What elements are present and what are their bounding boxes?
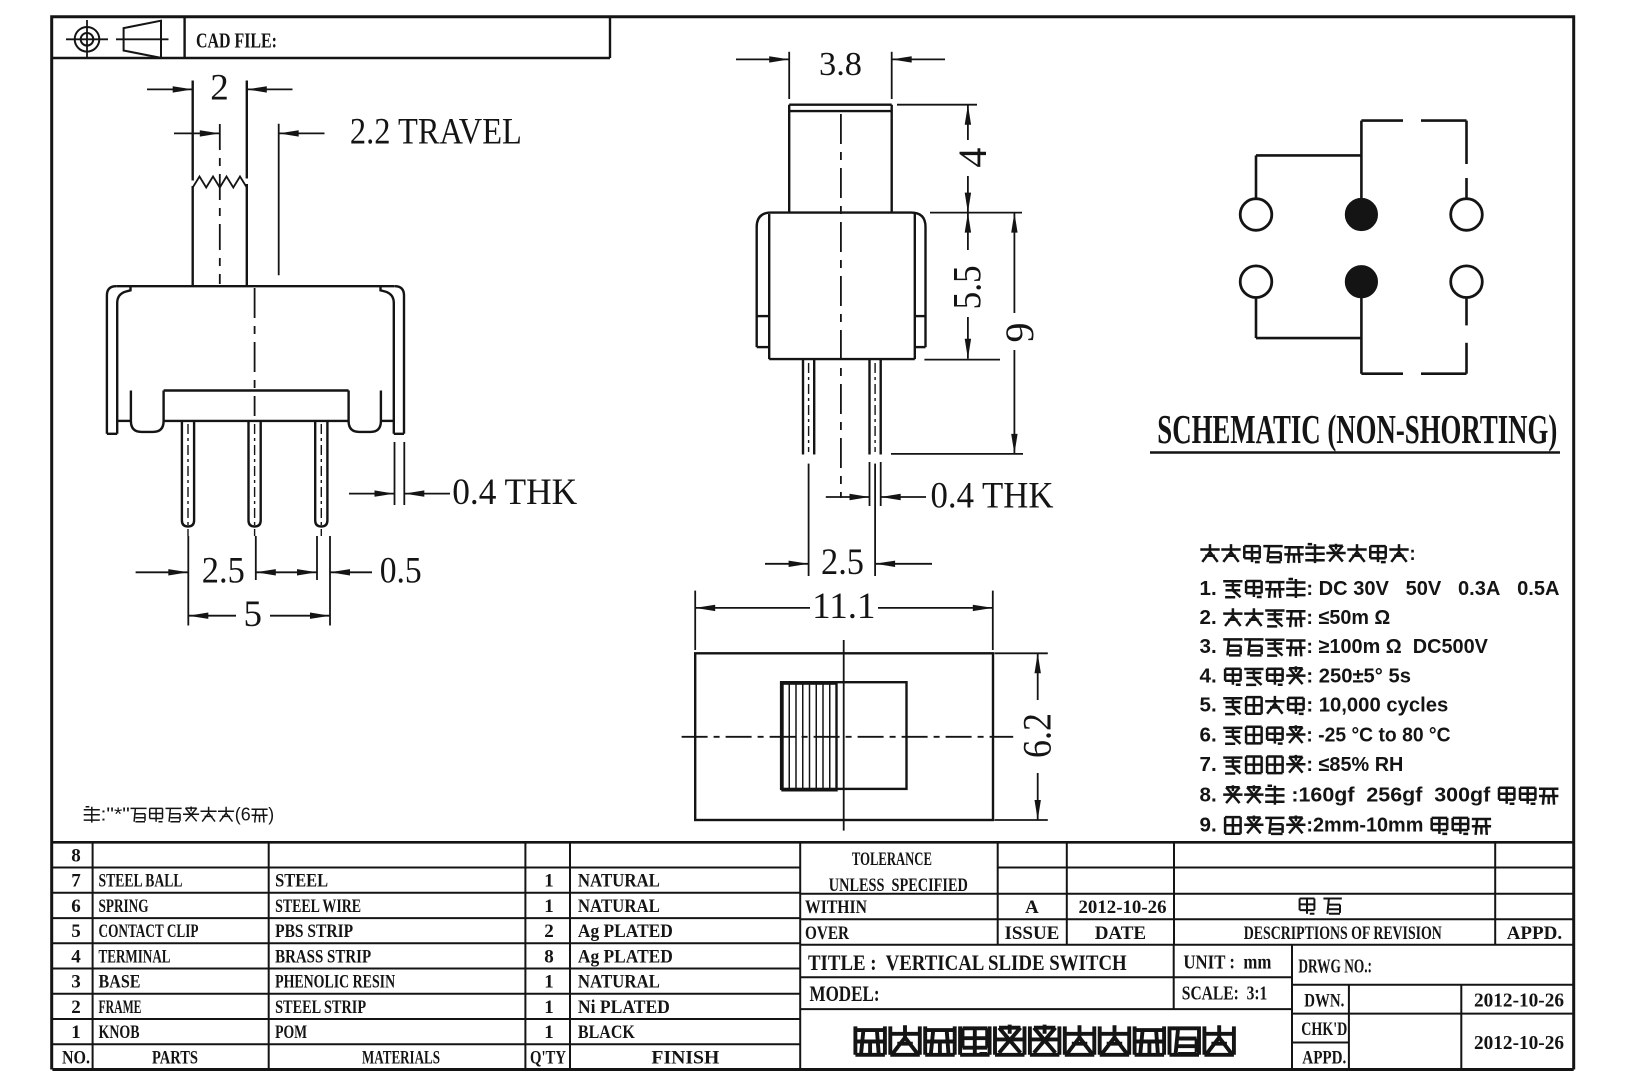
svg-text:2: 2 bbox=[544, 921, 554, 942]
svg-text:NATURAL: NATURAL bbox=[578, 896, 660, 917]
svg-text:: 10,000 cycles: : 10,000 cycles bbox=[1306, 694, 1448, 717]
svg-text:8: 8 bbox=[71, 845, 81, 866]
svg-text:7: 7 bbox=[71, 871, 81, 892]
svg-text:NATURAL: NATURAL bbox=[578, 972, 660, 993]
svg-text:BASE: BASE bbox=[99, 972, 141, 993]
svg-text:1: 1 bbox=[71, 1022, 81, 1043]
svg-text:2: 2 bbox=[71, 997, 81, 1018]
svg-text:MODEL:: MODEL: bbox=[810, 981, 880, 1006]
svg-text:5: 5 bbox=[244, 594, 263, 635]
svg-text:Q'TY: Q'TY bbox=[530, 1047, 566, 1068]
svg-text:BRASS STRIP: BRASS STRIP bbox=[275, 946, 371, 967]
svg-text:9.: 9. bbox=[1200, 814, 1223, 837]
svg-text:5.5: 5.5 bbox=[944, 265, 989, 309]
svg-text:6: 6 bbox=[71, 896, 81, 917]
svg-text:FINISH: FINISH bbox=[651, 1047, 719, 1068]
svg-text:8.: 8. bbox=[1200, 784, 1223, 807]
svg-text:UNIT : mm: UNIT : mm bbox=[1183, 952, 1271, 974]
svg-text:3.8: 3.8 bbox=[819, 46, 862, 83]
svg-text:7.: 7. bbox=[1200, 753, 1223, 776]
svg-text:DESCRIPTIONS OF REVISION: DESCRIPTIONS OF REVISION bbox=[1244, 923, 1442, 944]
svg-text:2.2 TRAVEL: 2.2 TRAVEL bbox=[350, 112, 522, 153]
svg-text:STEEL STRIP: STEEL STRIP bbox=[275, 997, 366, 1018]
svg-text:: ≥100m Ω DC500V: : ≥100m Ω DC500V bbox=[1306, 635, 1488, 658]
svg-text:STEEL: STEEL bbox=[275, 871, 328, 892]
svg-text:TOLERANCE: TOLERANCE bbox=[852, 849, 932, 870]
svg-text:: ≤50m Ω: : ≤50m Ω bbox=[1306, 606, 1390, 629]
svg-text:ISSUE: ISSUE bbox=[1004, 923, 1059, 944]
svg-text:2012-10-26: 2012-10-26 bbox=[1474, 990, 1564, 1012]
svg-text:1: 1 bbox=[544, 896, 554, 917]
svg-text:Ni PLATED: Ni PLATED bbox=[578, 997, 670, 1018]
svg-text:APPD.: APPD. bbox=[1302, 1048, 1346, 1069]
svg-text:CONTACT CLIP: CONTACT CLIP bbox=[99, 921, 199, 942]
svg-text:POM: POM bbox=[275, 1022, 307, 1043]
svg-text:0.4 THK: 0.4 THK bbox=[452, 472, 577, 513]
svg-text:PARTS: PARTS bbox=[152, 1047, 198, 1068]
svg-text:: -25 °C to 80 °C: : -25 °C to 80 °C bbox=[1306, 723, 1450, 746]
svg-text:TERMINAL: TERMINAL bbox=[99, 946, 171, 967]
svg-text::160gf 256gf 300gf: :160gf 256gf 300gf bbox=[1285, 784, 1496, 807]
svg-text:CHK'D: CHK'D bbox=[1301, 1019, 1347, 1040]
svg-text:2.5: 2.5 bbox=[821, 542, 864, 583]
svg-text:: DC 30V 50V 0.3A 0.5A: : DC 30V 50V 0.3A 0.5A bbox=[1306, 577, 1559, 600]
svg-text:MATERIALS: MATERIALS bbox=[362, 1047, 440, 1068]
svg-text:CAD FILE:: CAD FILE: bbox=[196, 29, 277, 53]
svg-text::2mm-10mm: :2mm-10mm bbox=[1306, 814, 1429, 837]
svg-text:4.: 4. bbox=[1200, 665, 1223, 688]
svg-text:BLACK: BLACK bbox=[578, 1022, 635, 1043]
svg-text:3: 3 bbox=[71, 972, 81, 993]
svg-text:A: A bbox=[1025, 897, 1039, 918]
svg-text:: 250±5° 5s: : 250±5° 5s bbox=[1306, 665, 1411, 688]
svg-text:2012-10-26: 2012-10-26 bbox=[1474, 1032, 1564, 1054]
svg-text:OVER: OVER bbox=[805, 923, 849, 944]
svg-text:UNLESS SPECIFIED: UNLESS SPECIFIED bbox=[829, 875, 968, 896]
svg-text:DRWG NO.:: DRWG NO.: bbox=[1298, 956, 1372, 978]
svg-text:0.4 THK: 0.4 THK bbox=[931, 476, 1054, 517]
svg-text:8: 8 bbox=[544, 946, 554, 967]
svg-text:6.: 6. bbox=[1200, 723, 1223, 746]
svg-text:Ag PLATED: Ag PLATED bbox=[578, 921, 673, 942]
svg-text:FRAME: FRAME bbox=[99, 997, 142, 1018]
svg-text:5.: 5. bbox=[1200, 694, 1223, 717]
svg-text:NO.: NO. bbox=[62, 1047, 90, 1068]
svg-text:3.: 3. bbox=[1200, 635, 1223, 658]
svg-text:STEEL BALL: STEEL BALL bbox=[99, 871, 183, 892]
svg-text:0.5: 0.5 bbox=[380, 551, 422, 592]
svg-text:(6: (6 bbox=[235, 805, 251, 825]
svg-text:TITLE : VERTICAL SLIDE SWITCH: TITLE : VERTICAL SLIDE SWITCH bbox=[808, 950, 1127, 975]
svg-text:SCALE: 3:1: SCALE: 3:1 bbox=[1182, 983, 1268, 1005]
svg-text:APPD.: APPD. bbox=[1507, 923, 1562, 944]
svg-text:PBS STRIP: PBS STRIP bbox=[275, 921, 353, 942]
svg-text:SCHEMATIC (NON-SHORTING): SCHEMATIC (NON-SHORTING) bbox=[1157, 406, 1557, 452]
svg-text:): ) bbox=[268, 805, 274, 825]
svg-text:DWN.: DWN. bbox=[1304, 990, 1344, 1011]
svg-text:9: 9 bbox=[997, 323, 1042, 343]
svg-text:SPRING: SPRING bbox=[99, 896, 149, 917]
svg-text:2.5: 2.5 bbox=[202, 551, 245, 592]
svg-text:2.: 2. bbox=[1200, 606, 1223, 629]
svg-text:DATE: DATE bbox=[1095, 923, 1146, 944]
svg-text:KNOB: KNOB bbox=[99, 1022, 140, 1043]
svg-text:1: 1 bbox=[544, 871, 554, 892]
svg-text:STEEL WIRE: STEEL WIRE bbox=[275, 896, 361, 917]
svg-text:Ag PLATED: Ag PLATED bbox=[578, 946, 673, 967]
svg-text:1.: 1. bbox=[1200, 577, 1223, 600]
svg-text:PHENOLIC RESIN: PHENOLIC RESIN bbox=[275, 972, 395, 993]
svg-text::: : bbox=[1410, 542, 1416, 565]
svg-text:2: 2 bbox=[210, 68, 229, 109]
svg-text:NATURAL: NATURAL bbox=[578, 871, 660, 892]
svg-text:2012-10-26: 2012-10-26 bbox=[1079, 897, 1167, 918]
svg-text:5: 5 bbox=[71, 921, 81, 942]
svg-text:WITHIN: WITHIN bbox=[805, 897, 867, 918]
svg-text::"*": :"*" bbox=[101, 805, 130, 825]
svg-text:11.1: 11.1 bbox=[812, 586, 875, 627]
svg-text:1: 1 bbox=[544, 997, 554, 1018]
svg-text:1: 1 bbox=[544, 972, 554, 993]
svg-text:4: 4 bbox=[950, 148, 995, 168]
svg-text:6.2: 6.2 bbox=[1014, 713, 1059, 758]
svg-text:4: 4 bbox=[71, 946, 81, 967]
svg-text:1: 1 bbox=[544, 1022, 554, 1043]
svg-text:: ≤85% RH: : ≤85% RH bbox=[1306, 753, 1403, 776]
